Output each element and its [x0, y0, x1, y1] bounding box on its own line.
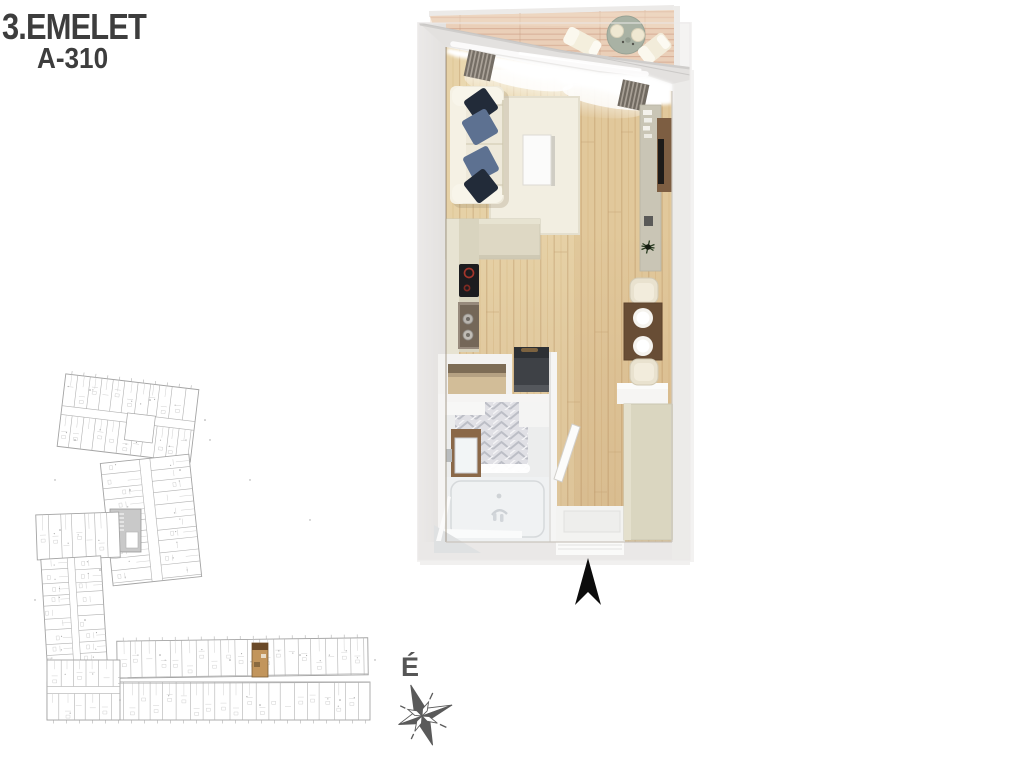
svg-text:É: É	[401, 651, 419, 682]
